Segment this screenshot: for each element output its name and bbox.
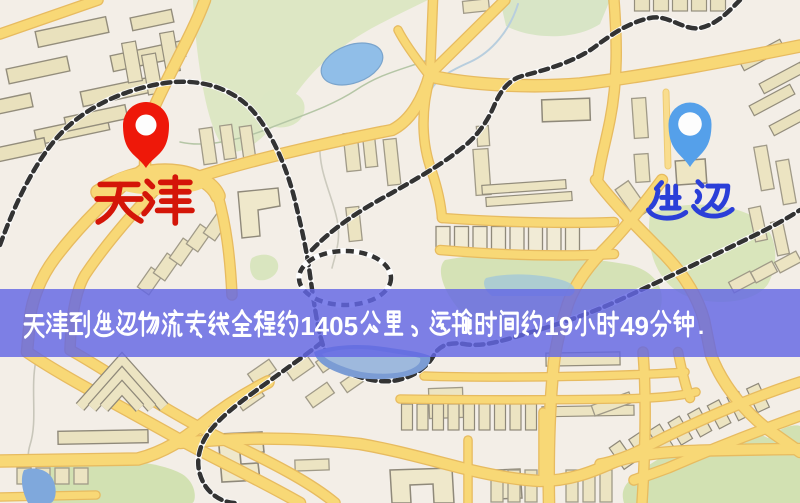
svg-text:1405: 1405: [300, 311, 358, 341]
svg-text:.: .: [698, 314, 704, 339]
svg-text:19: 19: [544, 311, 573, 341]
svg-text:49: 49: [620, 311, 649, 341]
